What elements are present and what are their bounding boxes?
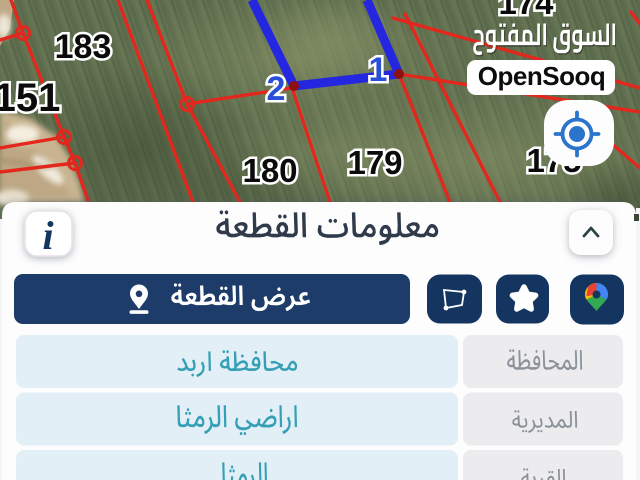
svg-text:180: 180	[242, 152, 297, 189]
svg-text:179: 179	[347, 144, 402, 181]
svg-text:183: 183	[55, 28, 112, 66]
svg-text:174: 174	[498, 0, 554, 21]
svg-text:i: i	[42, 213, 53, 258]
svg-text:OpenSooq: OpenSooq	[478, 61, 605, 91]
svg-text:1: 1	[369, 51, 388, 89]
svg-text:151: 151	[0, 76, 60, 120]
svg-text:2: 2	[267, 70, 286, 108]
